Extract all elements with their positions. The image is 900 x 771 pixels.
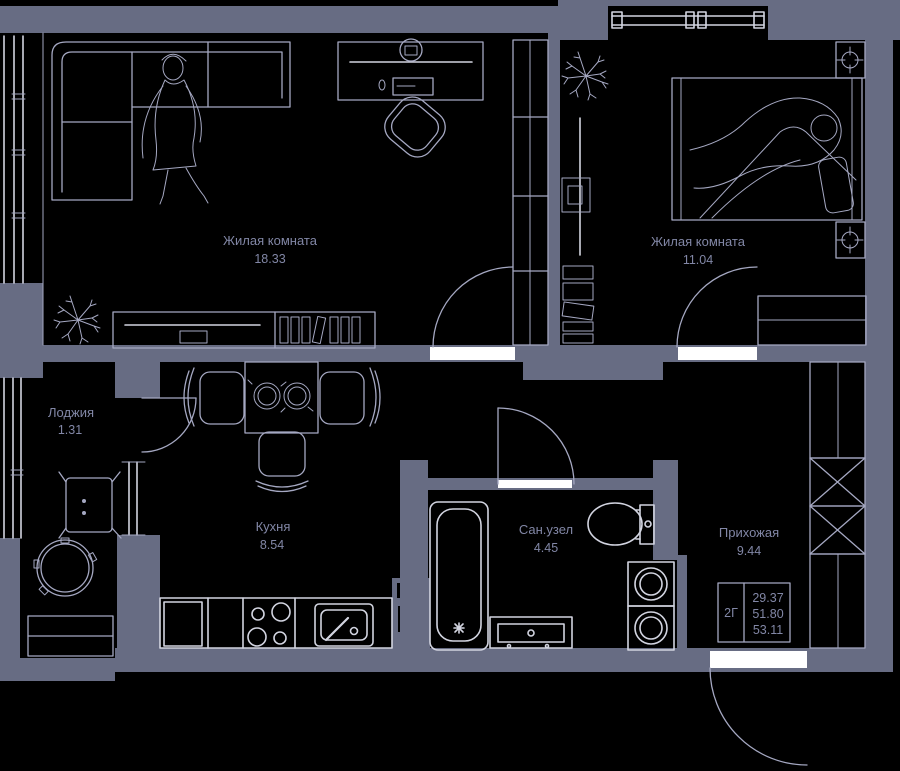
room-area: 11.04 <box>683 253 713 267</box>
living-room-1: Жилая комната 18.33 <box>52 39 548 348</box>
plant-icon <box>54 296 100 344</box>
stove <box>248 603 290 646</box>
entrance-door-threshold <box>710 651 807 668</box>
windows <box>4 12 764 538</box>
bedside-lamp-icon <box>837 227 863 253</box>
fridge <box>164 602 202 646</box>
room-area: 18.33 <box>254 252 285 266</box>
wall-loggia-kitchen-bottom <box>117 535 160 648</box>
pillow <box>818 156 855 214</box>
bedroom-closet <box>758 296 866 345</box>
bathtub <box>430 502 488 650</box>
room-label-kitchen: Кухня 8.54 <box>256 519 291 552</box>
bed <box>672 78 862 220</box>
room-name: Сан.узел <box>519 522 573 537</box>
area-main-value: 51.80 <box>752 607 783 621</box>
wall-center-block <box>523 362 663 380</box>
window-loggia-kitchen <box>122 462 145 535</box>
place-setting <box>248 380 286 409</box>
room-name: Жилая комната <box>223 233 318 248</box>
sink <box>315 604 373 646</box>
wall-left-mid <box>0 283 43 378</box>
toilet <box>588 503 654 545</box>
nightstand-top <box>836 42 865 78</box>
room-name: Лоджия <box>48 405 94 420</box>
area-total-value: 53.11 <box>753 623 783 637</box>
room-name: Жилая комната <box>651 234 746 249</box>
room-area: 4.45 <box>534 541 558 555</box>
mouse <box>379 80 385 90</box>
living-door-threshold <box>430 347 515 360</box>
wall-bottom <box>115 648 807 672</box>
hallway: 2Г 29.37 51.80 53.11 Прихожая 9.44 <box>718 362 865 648</box>
planter-box <box>28 616 113 656</box>
dryer <box>628 606 674 650</box>
room-label-bathroom: Сан.узел 4.45 <box>519 522 573 555</box>
wardrobe-closet <box>513 40 548 345</box>
bathroom: Сан.узел 4.45 <box>430 502 674 650</box>
wall-loggia-bottom <box>0 658 115 681</box>
bedside-lamp-icon <box>837 47 863 73</box>
shoe-cabinet <box>810 458 865 506</box>
kitchen: Кухня 8.54 <box>160 362 392 648</box>
wall-bathroom-left <box>400 460 428 648</box>
chair-right <box>320 368 380 426</box>
dining-table <box>245 362 318 433</box>
wall-room-divider <box>548 33 560 345</box>
desk <box>338 39 483 100</box>
room-label-living-1: Жилая комната 18.33 <box>223 233 318 266</box>
loggia: Лоджия 1.31 <box>28 405 121 656</box>
wall-loggia-kitchen-top <box>115 362 160 398</box>
entrance-door-arc <box>710 668 807 765</box>
shoe-cabinet <box>810 506 865 554</box>
bathroom-door-threshold <box>498 480 572 488</box>
media-device <box>180 331 207 343</box>
tv-console <box>113 312 375 348</box>
bookshelf <box>280 316 360 343</box>
wall-bathroom-hall <box>677 555 687 648</box>
washing-machine <box>628 562 674 606</box>
legend: 2Г 29.37 51.80 53.11 <box>718 583 790 642</box>
room-area: 1.31 <box>58 423 82 437</box>
bedroom-door-arc <box>677 267 757 347</box>
desk-chair <box>378 90 452 163</box>
wall-top <box>0 6 608 33</box>
wall-right <box>865 40 893 672</box>
shelf-unit <box>562 266 594 343</box>
flat-type: 2Г <box>724 606 738 620</box>
drain <box>454 623 464 633</box>
wall-left-lower <box>0 538 20 659</box>
room-name: Прихожая <box>719 525 779 540</box>
chair-bottom <box>256 432 308 492</box>
room-area: 8.54 <box>260 538 284 552</box>
room-name: Кухня <box>256 519 291 534</box>
armchair <box>59 472 121 538</box>
standing-person-figure <box>142 54 208 204</box>
area-living-value: 29.37 <box>752 591 783 605</box>
window-loggia-left <box>4 378 23 538</box>
bedroom-door-threshold <box>678 347 757 360</box>
plant-icon <box>562 52 608 100</box>
doors <box>142 267 807 765</box>
vanity-sink <box>490 617 572 648</box>
room-label-living-2: Жилая комната 11.04 <box>651 234 746 267</box>
kitchen-counter <box>160 598 392 648</box>
place-setting <box>281 383 313 412</box>
room-label-loggia: Лоджия 1.31 <box>48 405 94 437</box>
room-label-hallway: Прихожая 9.44 <box>719 525 779 558</box>
nightstand-bottom <box>836 222 865 258</box>
window-bay-recess <box>608 6 768 40</box>
tv-wall-mount <box>562 118 590 255</box>
bedroom: Жилая комната 11.04 <box>562 42 866 345</box>
bathroom-door-arc <box>498 408 574 484</box>
floor-plan: Жилая комната 18.33 <box>0 0 900 771</box>
wall-bathroom-right <box>653 460 678 560</box>
window-living-left <box>4 36 25 283</box>
room-area: 9.44 <box>737 544 761 558</box>
hall-wardrobe <box>810 362 865 648</box>
wall-bottom-right <box>807 648 893 672</box>
sofa <box>52 42 290 200</box>
living-door-arc <box>433 267 513 347</box>
walls <box>0 0 900 681</box>
round-table <box>34 538 97 596</box>
